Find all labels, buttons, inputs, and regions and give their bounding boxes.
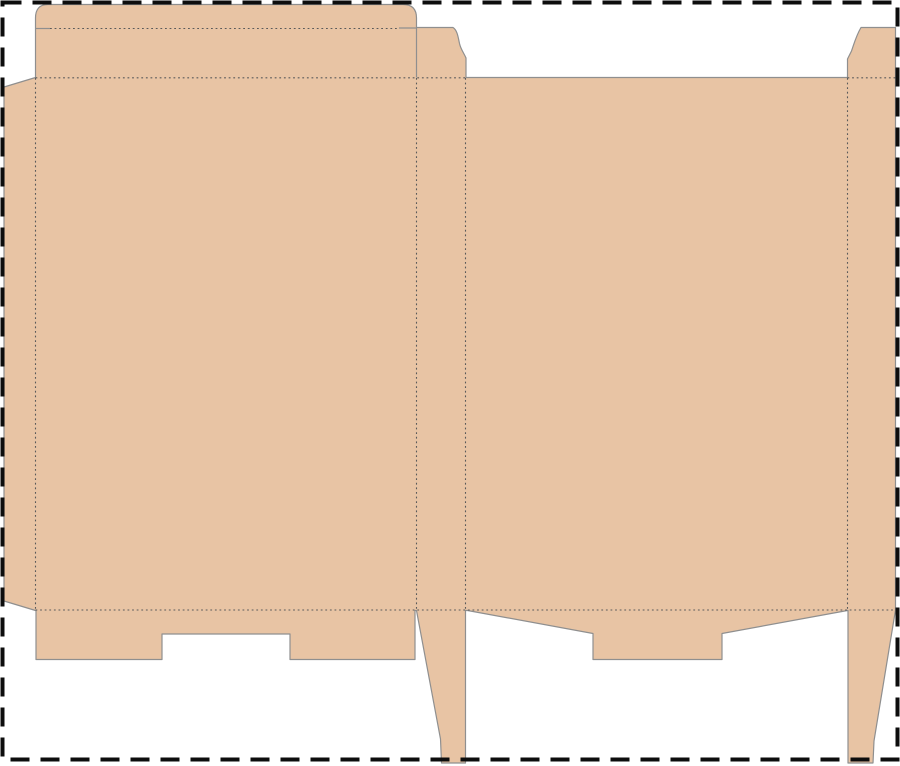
dieline-drawing	[0, 0, 900, 766]
dieline-artboard	[0, 0, 900, 766]
